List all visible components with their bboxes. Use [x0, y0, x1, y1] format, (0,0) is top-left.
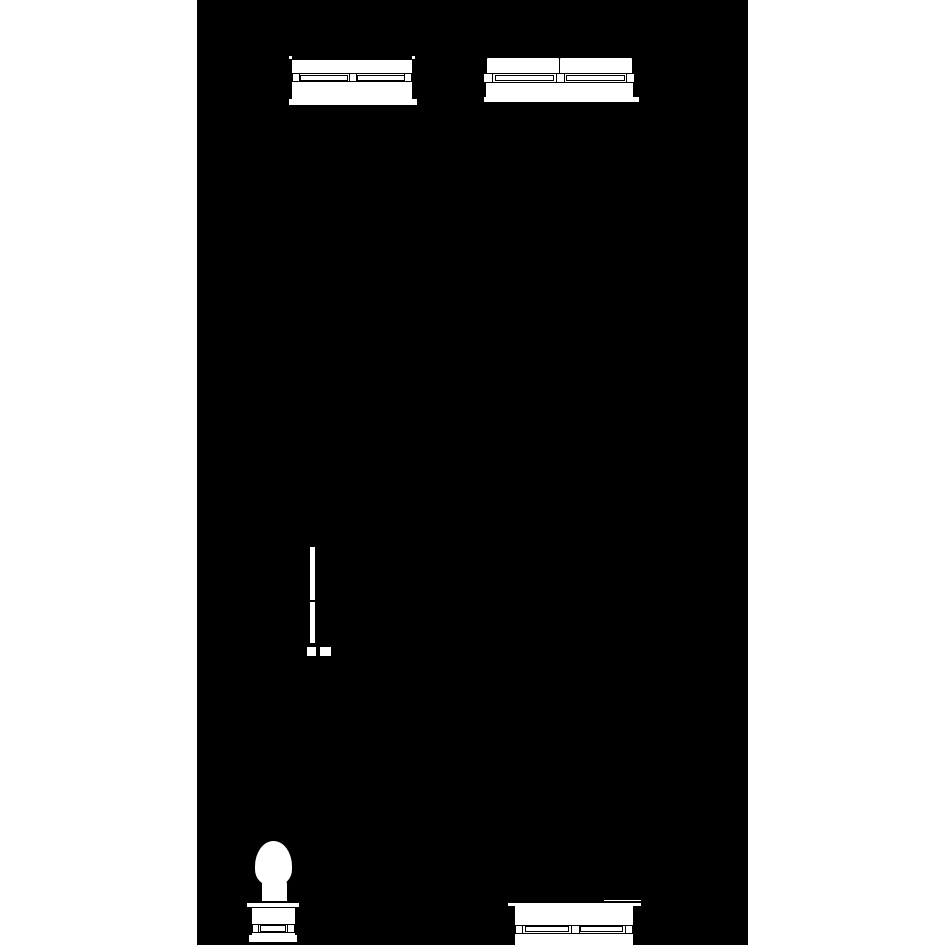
sofa-elevation-bottom — [197, 0, 748, 945]
rail-block-right — [625, 925, 633, 934]
drawing-canvas — [197, 0, 748, 945]
rail-block-center — [571, 925, 580, 934]
body-panel — [515, 905, 633, 925]
rail-panel-right — [580, 926, 623, 932]
rail-block-left — [515, 925, 523, 934]
drawing-sheet — [0, 0, 945, 945]
skirt-panel — [515, 934, 633, 945]
rail-panel-left — [525, 926, 569, 932]
